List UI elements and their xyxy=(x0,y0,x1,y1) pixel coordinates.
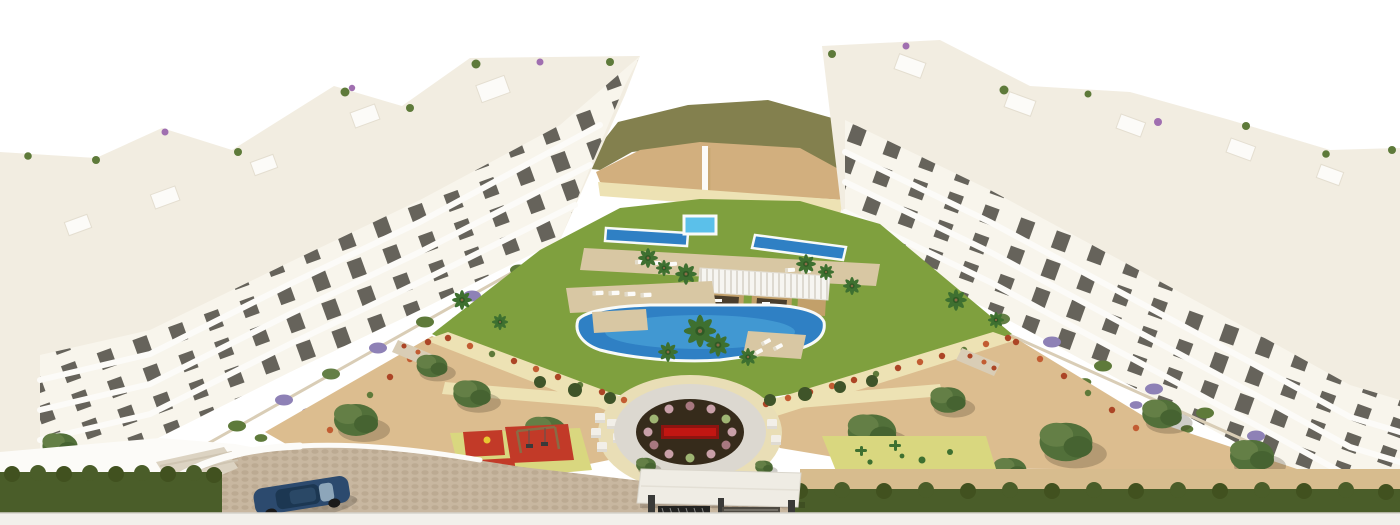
aerial-render-stage: Aerial 3D render of a white modern apart… xyxy=(0,0,1400,525)
square-pool xyxy=(684,216,716,234)
spring-rider xyxy=(484,437,491,444)
sidewalk xyxy=(0,513,1400,525)
pool-peninsula-deck xyxy=(592,309,648,333)
aerial-render xyxy=(0,0,1400,525)
